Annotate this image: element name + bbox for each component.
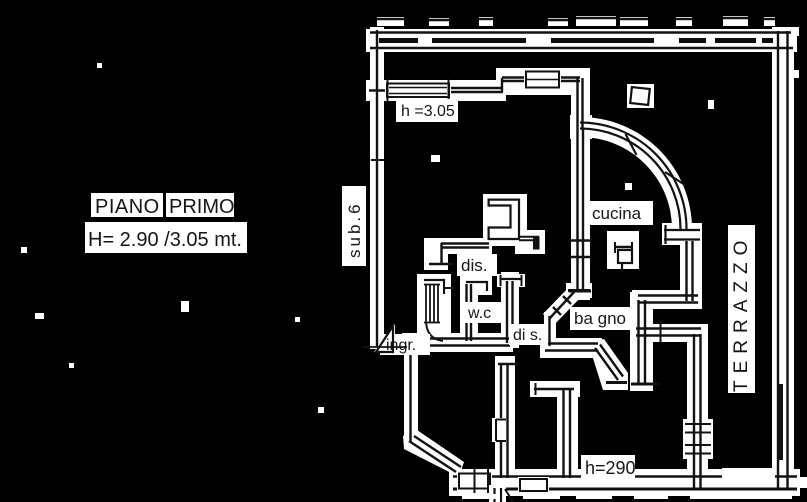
svg-text:PRIMO: PRIMO <box>169 196 235 218</box>
svg-text:cucina: cucina <box>592 204 642 223</box>
svg-text:w.c: w.c <box>467 305 491 322</box>
svg-text:TERRAZZO: TERRAZZO <box>731 234 752 392</box>
svg-text:dis.: dis. <box>461 256 487 275</box>
svg-text:PIANO: PIANO <box>95 196 160 218</box>
svg-text:H= 2.90 /3.05 mt.: H= 2.90 /3.05 mt. <box>88 229 242 251</box>
svg-text:h =3.05: h =3.05 <box>401 103 455 120</box>
svg-text:sub.6: sub.6 <box>345 201 364 258</box>
svg-text:ba gno: ba gno <box>574 309 626 328</box>
svg-text:di s.: di s. <box>513 327 542 344</box>
svg-text:ingr.: ingr. <box>386 337 416 354</box>
svg-text:h=290: h=290 <box>585 458 636 478</box>
